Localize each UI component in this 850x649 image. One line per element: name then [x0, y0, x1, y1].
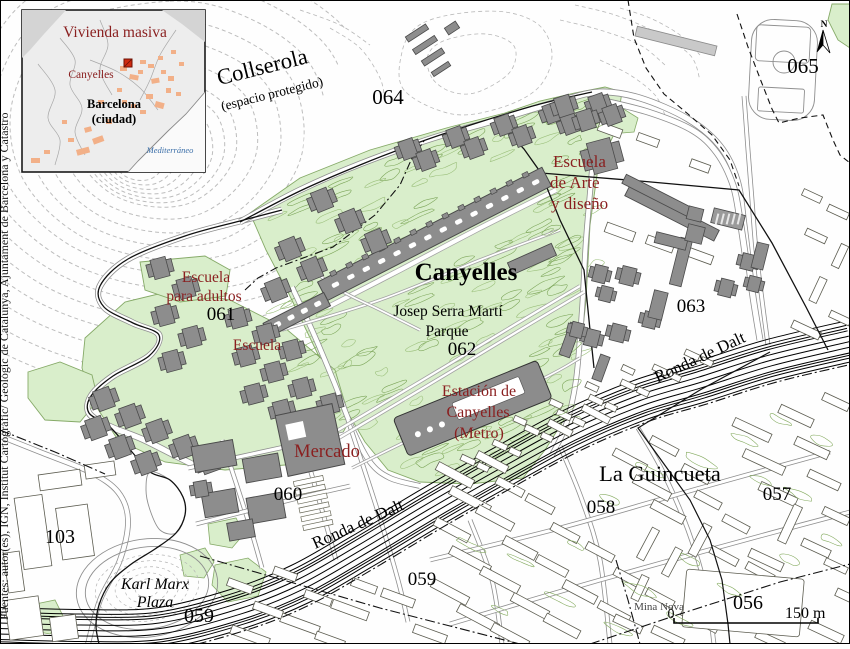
- svg-text:065: 065: [787, 54, 819, 78]
- svg-text:Fuentes: autor(es), IGN, Insti: Fuentes: autor(es), IGN, Institut Cartog…: [0, 112, 11, 620]
- svg-text:N: N: [821, 20, 828, 30]
- svg-text:062: 062: [448, 339, 477, 360]
- svg-text:103: 103: [45, 526, 75, 548]
- svg-text:0: 0: [668, 607, 675, 622]
- svg-text:Canyelles: Canyelles: [446, 404, 509, 421]
- svg-text:Mina Nova: Mina Nova: [634, 601, 684, 613]
- svg-text:para adultos: para adultos: [166, 288, 241, 305]
- svg-text:059: 059: [408, 569, 437, 590]
- svg-text:057: 057: [763, 484, 792, 505]
- svg-text:Josep Serra Martí: Josep Serra Martí: [393, 303, 503, 320]
- svg-text:061: 061: [207, 304, 236, 325]
- svg-text:y diseño: y diseño: [551, 194, 608, 213]
- svg-text:Estación de: Estación de: [442, 383, 516, 400]
- svg-text:de Arte: de Arte: [550, 173, 600, 192]
- svg-text:Escuela: Escuela: [182, 269, 230, 286]
- svg-text:Mediterráneo: Mediterráneo: [146, 145, 194, 155]
- svg-text:Canyelles: Canyelles: [415, 259, 518, 286]
- svg-text:Barcelona: Barcelona: [87, 97, 142, 111]
- svg-text:Karl Marx: Karl Marx: [120, 576, 189, 593]
- svg-text:064: 064: [372, 85, 404, 109]
- svg-text:059: 059: [184, 605, 214, 627]
- svg-text:Parque: Parque: [425, 323, 468, 340]
- svg-text:(ciudad): (ciudad): [92, 112, 136, 126]
- svg-text:056: 056: [733, 592, 763, 614]
- svg-text:Escuela: Escuela: [233, 337, 281, 354]
- svg-text:060: 060: [274, 484, 303, 505]
- svg-text:Mercado: Mercado: [294, 442, 360, 462]
- svg-text:Escuela: Escuela: [553, 152, 606, 171]
- svg-text:150 m: 150 m: [785, 605, 826, 622]
- svg-text:058: 058: [587, 497, 616, 518]
- svg-text:La Guincueta: La Guincueta: [599, 461, 721, 486]
- svg-text:Canyelles: Canyelles: [68, 69, 114, 81]
- svg-text:063: 063: [677, 296, 706, 317]
- svg-text:Vivienda masiva: Vivienda masiva: [63, 24, 167, 41]
- svg-text:(Metro): (Metro): [454, 425, 504, 442]
- svg-text:Plaza: Plaza: [136, 594, 173, 611]
